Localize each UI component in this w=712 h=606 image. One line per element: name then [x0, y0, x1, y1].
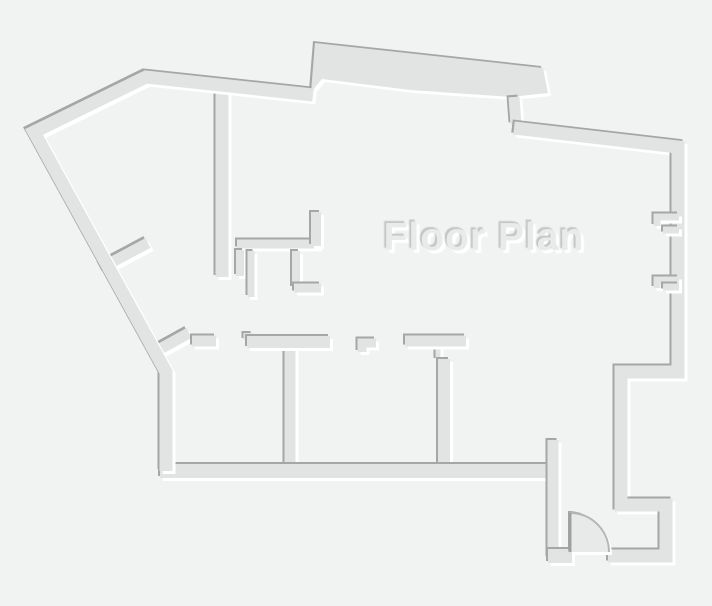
floor-plan-svg: Floor Plan	[0, 0, 712, 606]
step-wall	[514, 97, 516, 124]
floor-plan-canvas: Floor Plan	[0, 0, 712, 606]
floor-plan-title: Floor Plan	[384, 216, 585, 259]
